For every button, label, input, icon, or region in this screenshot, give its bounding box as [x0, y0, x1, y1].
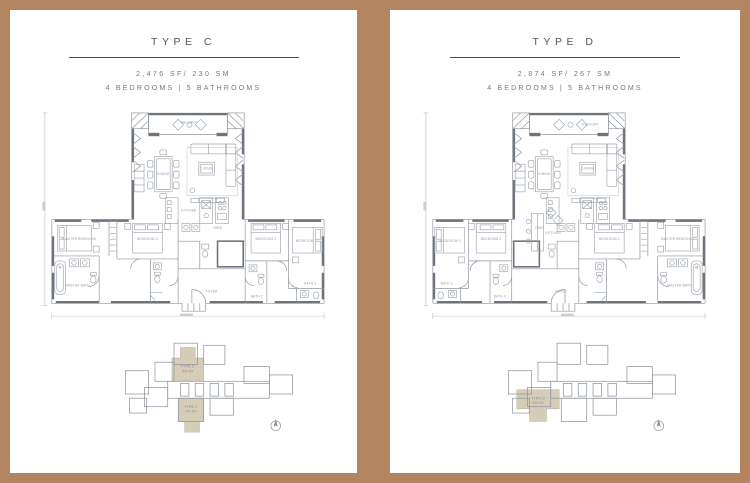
room-label-dining: DINING	[538, 172, 551, 176]
keyplan-unit-highlight-bottom	[178, 398, 203, 432]
plan-area: 2,874 SF/ 267 SM	[390, 71, 740, 78]
keyplan-type-d: TYPE D XX-XX	[502, 341, 682, 447]
room-label-yard: YARD	[212, 226, 222, 230]
room-label-bath2: BATH 2	[494, 294, 506, 298]
room-label-master-bedroom: MASTER BEDROOM	[62, 237, 95, 241]
keyplan-unit-label: TYPE C	[181, 365, 195, 369]
title-divider	[450, 57, 680, 58]
plan-header-type-d: TYPE D 2,874 SF/ 267 SM 4 BEDROOMS | 5 B…	[390, 10, 740, 92]
panel-type-c: TYPE C 2,476 SF/ 230 SM 4 BEDROOMS | 5 B…	[10, 10, 357, 473]
plan-header-type-c: TYPE C 2,476 SF/ 230 SM 4 BEDROOMS | 5 B…	[10, 10, 357, 92]
page-frame: TYPE C 2,476 SF/ 230 SM 4 BEDROOMS | 5 B…	[0, 0, 750, 483]
plan-config: 4 BEDROOMS | 5 BATHROOMS	[390, 85, 740, 92]
compass-icon	[654, 419, 664, 431]
floorplan-type-d: BALCONY DINING LIVING KITCHEN YARD FOYER…	[419, 107, 711, 326]
room-label-master-bath: MASTER BATH	[65, 284, 90, 288]
room-label-living: LIVING	[200, 167, 212, 171]
floorplan-upper-block	[131, 113, 243, 223]
plan-title: TYPE C	[10, 36, 357, 48]
room-label-bedroom2: BEDROOM 2	[255, 237, 276, 241]
room-label-bedroom2: BEDROOM 2	[481, 237, 502, 241]
plan-title: TYPE D	[390, 36, 740, 48]
room-label-foyer: FOYER	[555, 289, 567, 293]
room-label-balcony: BALCONY	[582, 123, 599, 127]
room-label-balcony: BALCONY	[180, 121, 197, 125]
room-label-master-bath: MASTER BATH	[667, 284, 692, 288]
room-label-kitchen: KITCHEN	[546, 231, 562, 235]
room-label-living: LIVING	[582, 167, 594, 171]
plan-config: 4 BEDROOMS | 5 BATHROOMS	[10, 85, 357, 92]
room-label-bath3: BATH 3	[441, 282, 453, 286]
room-label-bedroom4: BEDROOM 4	[599, 237, 620, 241]
keyplan-unit-number: XX-XX	[182, 369, 194, 373]
room-label-bedroom3: BEDROOM 3	[296, 239, 317, 243]
room-label-kitchen: KITCHEN	[181, 209, 197, 213]
floorplan-bedroom-wing-mirrored	[433, 219, 705, 311]
room-label-bedroom3: BEDROOM 3	[440, 239, 461, 243]
keyplan-unit-number: XX-XX	[185, 410, 197, 414]
compass-icon	[271, 419, 281, 431]
room-label-dining: DINING	[157, 172, 170, 176]
floorplan-type-c: BALCONY DINING LIVING KITCHEN YARD FOYER…	[38, 107, 330, 326]
plan-area: 2,476 SF/ 230 SM	[10, 71, 357, 78]
room-label-master-bedroom: MASTER BEDROOM	[661, 237, 694, 241]
kitchen-island	[526, 208, 563, 251]
room-label-foyer: FOYER	[205, 289, 217, 293]
room-label-bath2: BATH 2	[251, 294, 263, 298]
floorplan-bedroom-wing	[51, 219, 323, 311]
dimension-lines	[42, 113, 324, 319]
keyplan-unit-number: XX-XX	[532, 401, 544, 405]
title-divider	[69, 57, 299, 58]
keyplan-unit-label: TYPE D	[531, 396, 545, 400]
keyplan-footprint	[125, 343, 292, 421]
room-label-yard: YARD	[535, 226, 545, 230]
keyplan-unit-highlight	[517, 390, 559, 422]
keyplan-type-c: TYPE C XX-XX TYPE C XX-XX	[119, 341, 299, 447]
panel-type-d: TYPE D 2,874 SF/ 267 SM 4 BEDROOMS | 5 B…	[390, 10, 740, 473]
room-label-bath3: BATH 3	[304, 282, 316, 286]
floorplan-upper-block	[513, 113, 625, 223]
keyplan-unit-label: TYPE C	[184, 405, 198, 409]
room-label-bedroom4: BEDROOM 4	[137, 237, 158, 241]
